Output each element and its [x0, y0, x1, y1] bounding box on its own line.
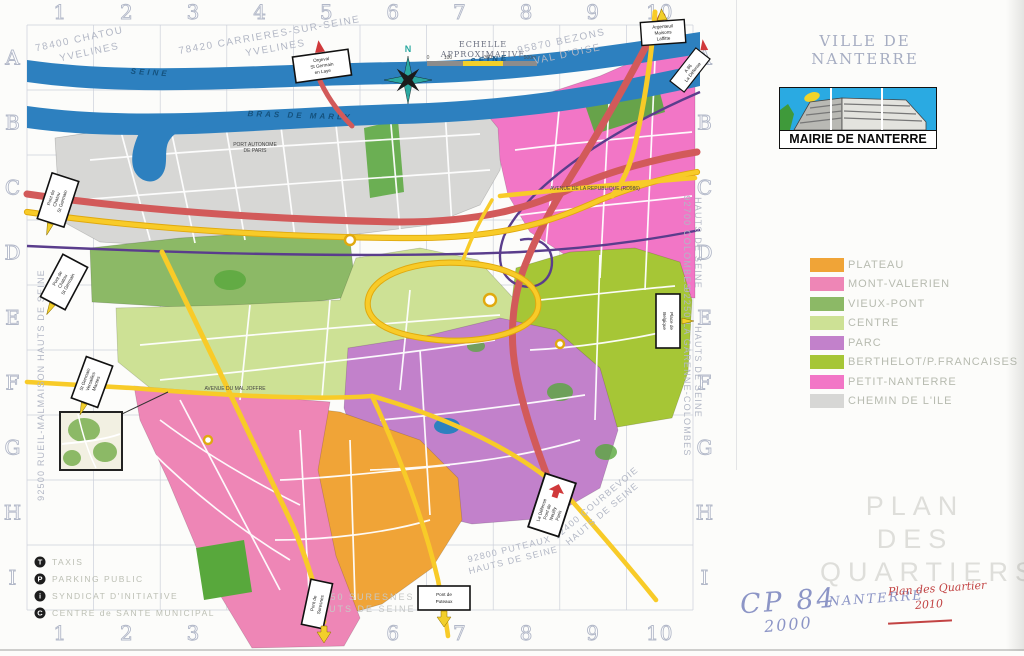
grid-column-label: 6	[386, 621, 400, 645]
poi-label: CENTRE de SANTE MUNICIPAL	[52, 608, 215, 618]
yellow-arrow-icon	[44, 223, 53, 236]
sign-line: Pont de	[436, 592, 452, 597]
legend-row: BERTHELOT/P.FRANCAISES	[810, 353, 1018, 373]
scale-seg	[503, 61, 537, 66]
legend-color-swatch	[810, 277, 844, 291]
scale-tick: 100	[444, 55, 453, 61]
label-port-autonome-2: DE PARIS	[244, 148, 268, 154]
grid-column-label: 8	[520, 0, 534, 24]
scanned-map-page: 1122334455667788991010AABBCCDDEEFFGGHHII	[0, 0, 1024, 651]
label-rueil: 92500 RUEIL-MALMAISON HAUTS DE SEINE	[36, 269, 46, 501]
mairie-logo-caption: MAIRIE DE NANTERRE	[780, 130, 936, 148]
sign-plate	[656, 294, 680, 348]
roundabout	[204, 436, 212, 444]
roundabout	[556, 340, 564, 348]
grid-column-label: 9	[586, 621, 600, 645]
legend-color-swatch	[810, 394, 844, 408]
sign-line: Place de	[669, 312, 674, 330]
sign-line: Belgique	[662, 312, 667, 330]
poi-label: SYNDICAT D'INITIATIVE	[52, 591, 178, 601]
poi-legend: TTAXISPPARKING PUBLICiSYNDICAT D'INITIAT…	[35, 557, 215, 619]
sign-plate	[418, 586, 470, 610]
legend-row: CHEMIN DE L'ILE	[810, 392, 1018, 412]
grid-column-label: 4	[253, 0, 267, 24]
grid-row-label: C	[697, 176, 713, 200]
scale-tick: 0	[427, 55, 430, 61]
legend-row: PARC	[810, 333, 1018, 353]
street-name-joffre: AVENUE DU MAL JOFFRE	[204, 386, 266, 392]
poi-label: TAXIS	[52, 557, 83, 567]
legend-label: PETIT-NANTERRE	[848, 376, 957, 388]
grid-column-label: 2	[120, 621, 134, 645]
street-name-republique: AVENUE DE LA REPUBLIQUE (RD986)	[550, 186, 640, 192]
park-strip	[364, 120, 404, 198]
mairie-logo: MAIRIE DE NANTERRE	[779, 87, 937, 149]
yellow-arrow-down-icon	[437, 611, 451, 627]
roundabout	[345, 235, 355, 245]
legend-row: PETIT-NANTERRE	[810, 372, 1018, 392]
grid-row-label: I	[701, 566, 710, 590]
grid-column-label: 6	[386, 0, 400, 24]
scale-title-1: ECHELLE	[459, 40, 507, 49]
legend-label: PARC	[848, 337, 882, 349]
grid-row-label: B	[697, 111, 713, 135]
legend-label: CENTRE	[848, 317, 899, 329]
grid-column-label: 7	[453, 621, 467, 645]
legend-row: CENTRE	[810, 314, 1018, 334]
grid-column-label: 1	[53, 0, 67, 24]
grid-row-label: B	[5, 111, 21, 135]
grid-row-label: D	[4, 241, 21, 265]
paper-crease	[736, 0, 737, 470]
red-arrow-up-icon	[313, 40, 325, 53]
legend-label: BERTHELOT/P.FRANCAISES	[848, 356, 1018, 368]
roundabout	[484, 294, 496, 306]
poi-icon-letter: T	[38, 558, 43, 567]
legend-color-swatch	[810, 336, 844, 350]
mairie-building-illustration	[780, 88, 933, 130]
park-blob	[214, 270, 246, 290]
grid-row-label: E	[5, 306, 21, 330]
legend-label: MONT-VALERIEN	[848, 278, 950, 290]
district-vieux-pont	[90, 232, 356, 308]
legend-color-swatch	[810, 297, 844, 311]
scan-edge-shadow	[1006, 0, 1024, 651]
page-title: VILLE DE NANTERRE	[770, 32, 960, 68]
grid-row-label: I	[9, 566, 18, 590]
legend-color-swatch	[810, 355, 844, 369]
grid-row-label: H	[696, 501, 714, 525]
grid-row-label: G	[5, 436, 22, 460]
grid-column-label: 7	[453, 0, 467, 24]
grid-column-label: 8	[520, 621, 534, 645]
label-colombes-2: HAUTS DE SEINE	[693, 197, 703, 289]
legend-label: VIEUX-PONT	[848, 298, 925, 310]
legend-label: PLATEAU	[848, 259, 904, 271]
park-blob	[595, 444, 617, 460]
scale-seg	[427, 61, 463, 66]
plan-title-line: DES	[820, 523, 1010, 556]
label-garenne-2: HAUTS DE SEINE	[693, 326, 703, 418]
grid-column-label: 3	[187, 0, 201, 24]
label-colombes-1: 92700 COLOMBES	[682, 195, 692, 290]
grid-column-label: 1	[53, 621, 67, 645]
scale-seg	[463, 61, 503, 66]
plan-title-line: PLAN	[820, 490, 1010, 523]
inset-park	[63, 450, 81, 466]
legend-row: MONT-VALERIEN	[810, 275, 1018, 295]
mairie-logo-picture	[780, 88, 936, 130]
legend-color-swatch	[810, 258, 844, 272]
poi-icon-letter: i	[39, 592, 41, 601]
label-garenne-1: 92250 LA GARENNE-COLOMBES	[682, 287, 692, 456]
grid-column-label: 9	[586, 0, 600, 24]
grid-row-label: A	[4, 46, 20, 70]
plan-des-quartiers-title: PLAN DES QUARTIERS	[820, 490, 1010, 589]
legend-row: PLATEAU	[810, 255, 1018, 275]
park-cemetery	[196, 540, 252, 600]
sign-line: Laffitte	[656, 35, 670, 41]
grid-row-label: G	[697, 436, 714, 460]
sign-line: Puteaux	[436, 599, 454, 604]
scale-title-2: APPROXIMATIVE	[440, 50, 525, 59]
grid-column-label: 3	[187, 621, 201, 645]
grid-row-label: H	[4, 501, 22, 525]
poi-icon-letter: P	[37, 575, 42, 584]
poi-icon-letter: C	[37, 609, 43, 618]
grid-column-label: 10	[646, 621, 673, 645]
scale-tick: 300	[484, 55, 493, 61]
inset-park	[93, 442, 117, 462]
poi-label: PARKING PUBLIC	[52, 574, 144, 584]
grid-row-label: F	[6, 371, 21, 395]
legend-row: VIEUX-PONT	[810, 294, 1018, 314]
legend-color-swatch	[810, 316, 844, 330]
grid-column-label: 2	[120, 0, 134, 24]
handwritten-red-year: 2010	[915, 597, 944, 612]
legend-label: CHEMIN DE L'ILE	[848, 395, 953, 407]
grid-row-label: C	[5, 176, 21, 200]
legend: PLATEAUMONT-VALERIENVIEUX-PONTCENTREPARC…	[810, 255, 1018, 411]
compass-north-label: N	[405, 44, 412, 54]
legend-color-swatch	[810, 375, 844, 389]
